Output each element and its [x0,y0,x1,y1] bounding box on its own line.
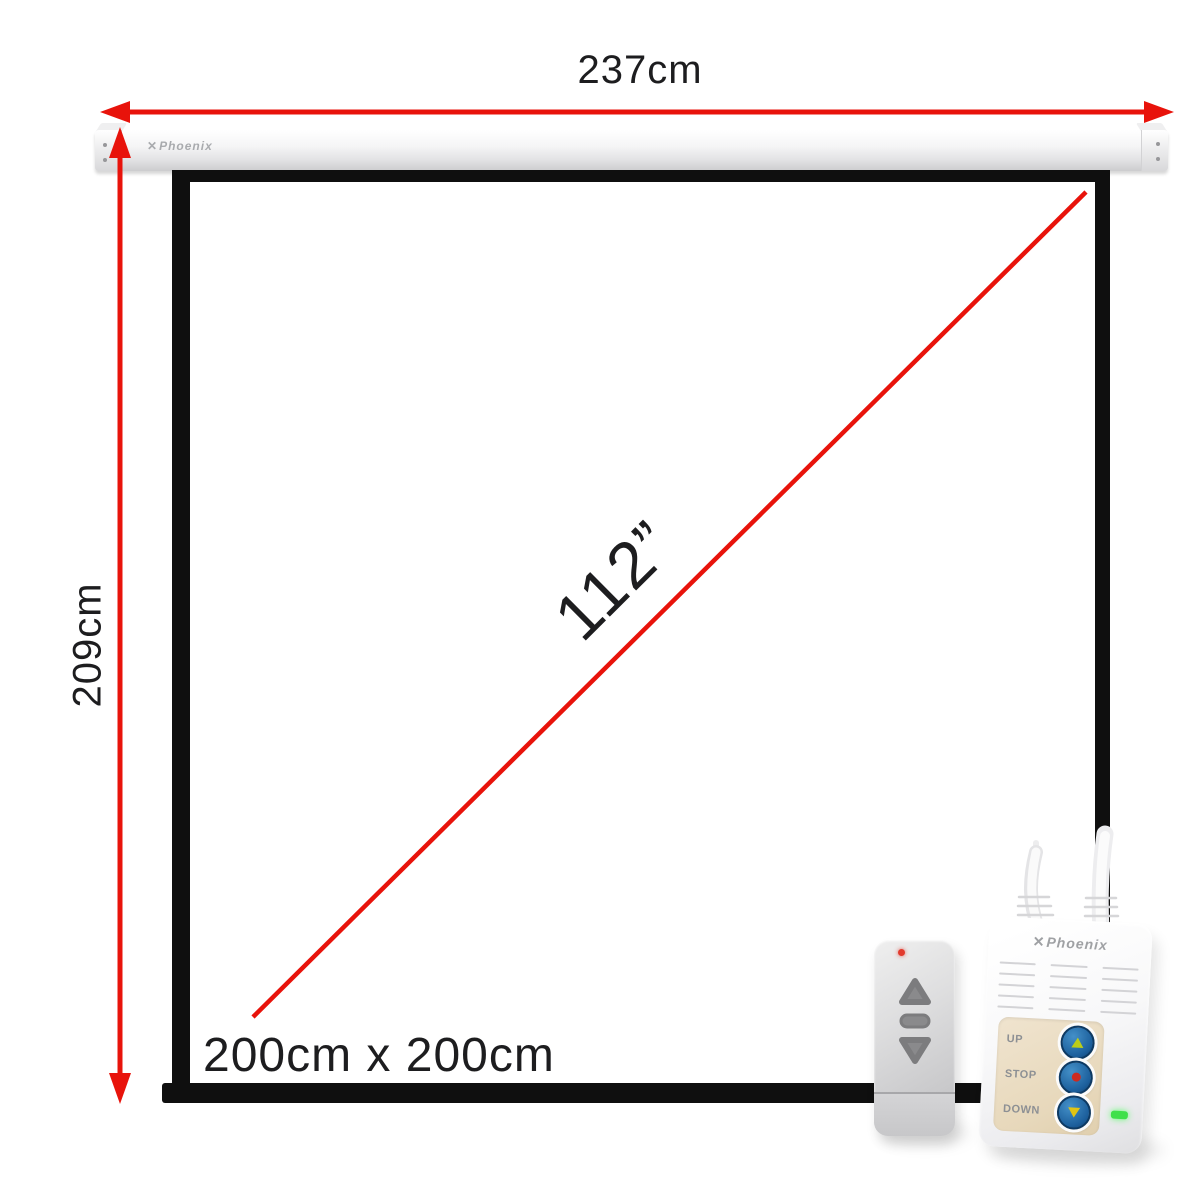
down-button-label: DOWN [1003,1102,1040,1116]
control-keypad: UP STOP DOWN [993,1016,1105,1135]
keypad-row-stop: STOP [1004,1057,1094,1096]
power-cable-right [1085,834,1120,930]
green-power-led [1111,1110,1128,1119]
remote-up-button [902,981,928,1002]
phoenix-x-icon: ✕ [1032,933,1046,950]
product-dimension-diagram: ✕Phoenix 237cm 209cm 112” 200cm x 200cm [0,0,1200,1200]
remote-control [874,940,955,1136]
remote-battery-cover [874,1092,955,1136]
keypad-row-down: DOWN [1002,1091,1092,1130]
unit-brand-logo: ✕Phoenix [988,931,1152,957]
down-arrow-icon [1068,1107,1081,1118]
remote-buttons [892,972,938,1072]
vent-grille [995,956,1141,1018]
unit-brand-text: Phoenix [1046,934,1108,953]
up-button-label: UP [1006,1033,1023,1046]
wall-control-unit: ✕Phoenix UP STOP DOWN [978,916,1153,1154]
stop-button-label: STOP [1005,1068,1037,1082]
remote-middle-button [901,1015,929,1027]
up-button [1060,1025,1096,1061]
stop-dot-icon [1071,1073,1080,1082]
power-cable-left [1018,843,1055,928]
stop-button [1058,1060,1094,1096]
remote-indicator-led [898,949,905,956]
remote-down-button [902,1040,928,1061]
down-button [1056,1094,1092,1130]
up-arrow-icon [1071,1038,1084,1049]
keypad-row-up: UP [1006,1022,1096,1061]
